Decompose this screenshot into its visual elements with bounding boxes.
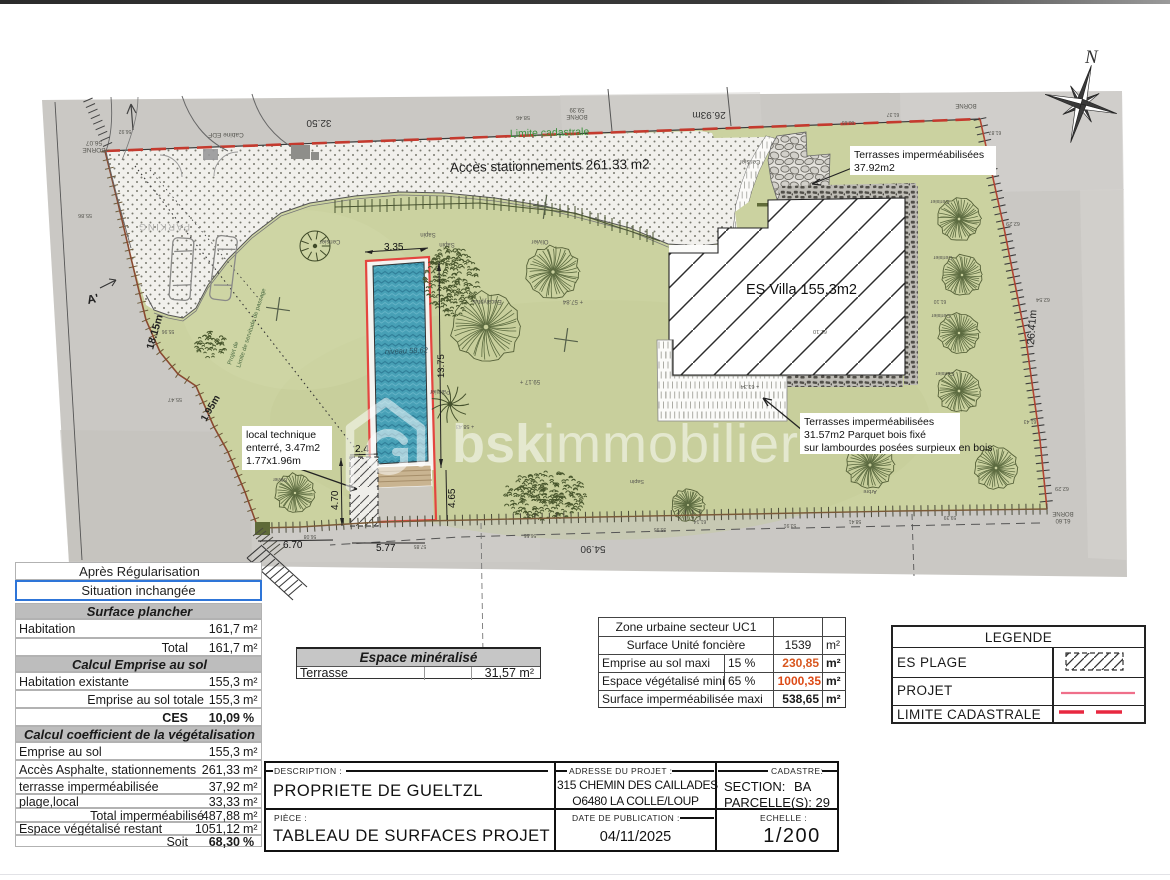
svg-text:BORNE: BORNE [566,113,587,119]
svg-text:Sapin: Sapin [420,231,435,237]
svg-text:PARKING: PARKING [137,221,190,232]
svg-text:61.10: 61.10 [813,328,827,334]
svg-text:sur lambourdes posées surpieux: sur lambourdes posées surpieux en bois [804,442,993,454]
svg-text:61.87: 61.87 [989,129,1002,135]
svg-text:58.41: 58.41 [849,518,862,524]
svg-text:Sapin: Sapin [630,478,644,484]
svg-text:60.65: 60.65 [842,119,855,125]
svg-text:bsk: bsk [452,414,546,474]
svg-text:32.50: 32.50 [306,117,331,128]
svg-text:61.43: 61.43 [1024,418,1037,424]
svg-text:Cerisier: Cerisier [935,370,954,376]
svg-text:Cerisier: Cerisier [930,198,949,204]
svg-text:Olivier: Olivier [531,238,548,244]
svg-text:59.39: 59.39 [569,106,585,112]
svg-text:Cerisier: Cerisier [320,238,341,244]
svg-text:56.92: 56.92 [119,128,132,134]
svg-text:54.90: 54.90 [580,543,605,554]
svg-text:13.75: 13.75 [436,354,447,378]
svg-text:local technique: local technique [246,429,316,441]
svg-text:61.14: 61.14 [694,518,707,524]
svg-text:62.54: 62.54 [1036,296,1050,302]
svg-text:4.70: 4.70 [330,490,341,510]
svg-text:61.37: 61.37 [887,111,900,117]
svg-text:55.96: 55.96 [162,328,175,334]
svg-text:Eucalyptus: Eucalyptus [472,298,501,304]
svg-text:+ 61.34: + 61.34 [741,383,760,389]
svg-text:BORNE: BORNE [955,102,976,108]
svg-text:+ 57.84: + 57.84 [562,298,583,304]
svg-text:61.10: 61.10 [934,298,947,304]
svg-text:3.35: 3.35 [384,242,404,253]
svg-text:Cerisier: Cerisier [740,158,761,164]
svg-text:62.29: 62.29 [1006,220,1020,226]
svg-text:62.29: 62.29 [1055,485,1069,491]
svg-text:N: N [1084,47,1099,68]
svg-text:Arbre: Arbre [863,488,876,494]
svg-text:Terrasses imperméabilisées: Terrasses imperméabilisées [854,149,984,161]
svg-text:enterré, 3.47m2: enterré, 3.47m2 [246,442,320,454]
svg-text:Terrasses imperméabilisées: Terrasses imperméabilisées [804,416,934,428]
svg-text:Limite cadastrale: Limite cadastrale [510,126,590,140]
svg-text:58.46: 58.46 [516,114,530,120]
svg-text:Cabine EDF: Cabine EDF [208,131,243,138]
svg-text:26.41m: 26.41m [1025,309,1039,345]
svg-text:ES Villa 155.3m2: ES Villa 155.3m2 [746,282,857,298]
svg-text:niveau 58.62: niveau 58.62 [385,345,429,356]
svg-text:37.92m2: 37.92m2 [854,162,895,174]
svg-text:59.39: 59.39 [944,514,957,520]
svg-text:immobilier: immobilier [543,414,799,474]
svg-text:55.47: 55.47 [168,396,182,402]
svg-text:Cerisier: Cerisier [931,312,950,318]
svg-text:BORNE: BORNE [82,146,106,153]
svg-text:56.07: 56.07 [85,139,102,146]
svg-text:6.70: 6.70 [283,540,303,551]
svg-text:59.17 +: 59.17 + [519,378,540,384]
svg-text:55.86: 55.86 [78,212,92,218]
svg-text:Cerisier: Cerisier [933,254,952,260]
svg-text:31.57m2 Parquet bois fixé: 31.57m2 Parquet bois fixé [804,429,926,441]
svg-text:56.08: 56.08 [304,533,317,539]
svg-text:Olivier: Olivier [273,476,288,482]
svg-text:56.55: 56.55 [524,532,537,538]
svg-text:26.93m: 26.93m [692,109,725,120]
svg-text:5.77: 5.77 [376,543,396,554]
svg-text:BORNE: BORNE [1052,510,1073,516]
svg-text:Sapin: Sapin [439,241,454,247]
svg-text:1.77x1.96m: 1.77x1.96m [246,455,301,467]
svg-text:53.91: 53.91 [784,522,797,528]
svg-text:61.60: 61.60 [1055,517,1071,523]
svg-text:55.95: 55.95 [654,526,667,532]
svg-text:4.65: 4.65 [447,488,458,508]
svg-text:57.85: 57.85 [414,543,427,549]
